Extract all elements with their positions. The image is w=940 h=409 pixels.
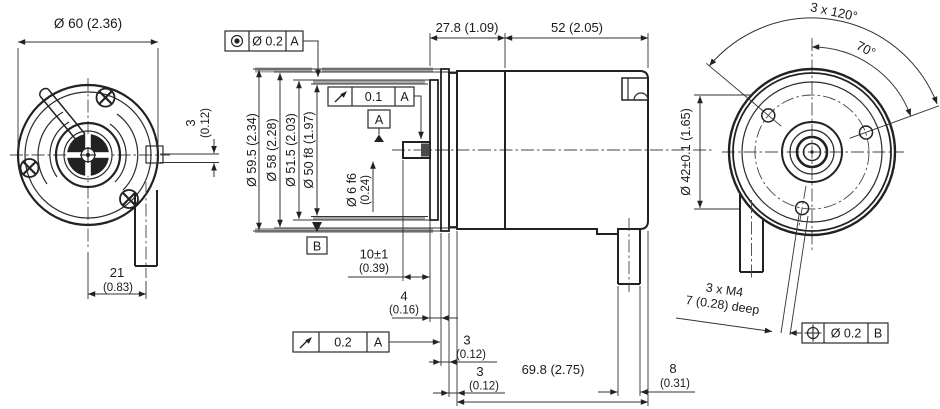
encoder-body [457, 71, 648, 234]
body-length-label: 69.8 (2.75) [522, 362, 585, 377]
bolt-circle-label: Ø 42±0.1 (1.65) [679, 108, 693, 195]
front-offset-label-inch: (0.12) [200, 108, 212, 138]
dim-plate1: 3 (0.12) [429, 333, 497, 363]
dim-step: 4 (0.16) [389, 289, 458, 319]
dim-shaft-diameter: Ø 6 f6 (0.24) [345, 162, 373, 213]
plate2-label-inch: (0.12) [469, 381, 499, 393]
rear-view: 3 x 120° 70° Ø 42±0.1 (1.65) 3 x M4 7 (0… [676, 0, 939, 343]
step-label-inch: (0.16) [389, 305, 419, 317]
dia-flange-label: Ø 59.5 (2.34) [245, 113, 259, 187]
shaft-dia-label: Ø 6 f6 [345, 173, 359, 207]
dim-front-offset: 3 (0.12) [160, 108, 219, 177]
length-rear-label: 52 (2.05) [551, 20, 603, 35]
dim-lengths-top: 27.8 (1.09) 52 (2.05) [430, 20, 648, 68]
cable-offset-label-inch: (0.83) [103, 282, 133, 294]
position-datum: B [874, 327, 882, 341]
runout-icon [335, 91, 347, 102]
front-screw-2 [21, 159, 39, 177]
step-label: 4 [400, 289, 407, 304]
plate2-label: 3 [476, 364, 483, 379]
position-tolerance: Ø 0.2 [831, 327, 862, 341]
rear-screw-holes [706, 63, 939, 229]
encoder-dimensional-drawing: Ø 60 (2.36) 3 (0.12) 21 (0.83) [0, 0, 940, 409]
dim-cable-diameter: 8 (0.31) [598, 361, 695, 392]
dia-inner-label: Ø 51.5 (2.03) [284, 113, 298, 187]
fcf-runout-face: 0.2 A [293, 332, 440, 352]
shaft-length-label-inch: (0.39) [359, 263, 389, 275]
shaft-dia-label-inch: (0.24) [360, 175, 372, 205]
plate1-label-inch: (0.12) [456, 349, 486, 361]
datum-b: B [307, 222, 327, 254]
front-offset-label: 3 [183, 119, 198, 126]
dim-front-cable-offset: 21 (0.83) [88, 252, 146, 299]
length-front-label: 27.8 (1.09) [436, 20, 499, 35]
dia-centering-label: Ø 50 f8 (1.97) [302, 111, 316, 188]
runout-face-datum: A [374, 336, 383, 350]
dim-bolt-circle: Ø 42±0.1 (1.65) [679, 95, 752, 209]
fcf-position: Ø 0.2 B [790, 323, 889, 343]
datum-a: A [368, 110, 390, 142]
dim-shaft-length: 10±1 (0.39) [348, 247, 430, 278]
datum-b-label: B [313, 240, 321, 254]
torque-stop-tab [146, 146, 163, 163]
concentricity-datum: A [290, 35, 299, 49]
runout-shaft-datum: A [400, 90, 409, 104]
front-screw-1 [97, 89, 115, 107]
thread-callout: 3 x M4 7 (0.28) deep [676, 215, 808, 335]
plate1-label: 3 [463, 333, 470, 348]
runout-shaft-tolerance: 0.1 [365, 90, 382, 104]
position-icon [805, 325, 822, 342]
shaft-length-label: 10±1 [360, 247, 389, 262]
cable-offset-label: 21 [110, 265, 124, 280]
datum-a-label: A [375, 113, 384, 127]
cable-dia-label: 8 [669, 361, 676, 376]
side-view: Ø 59.5 (2.34) Ø 58 (2.28) Ø 51.5 (2.03) … [225, 20, 714, 406]
front-view: Ø 60 (2.36) 3 (0.12) 21 (0.83) [10, 16, 219, 299]
diameter-dimensions: Ø 59.5 (2.34) Ø 58 (2.28) Ø 51.5 (2.03) … [245, 70, 317, 230]
concentricity-tolerance: Ø 0.2 [252, 35, 283, 49]
dim-plate2: 3 (0.12) [433, 364, 505, 393]
runout-face-tolerance: 0.2 [334, 336, 351, 350]
rear-cable [740, 194, 763, 280]
front-diameter-label: Ø 60 (2.36) [54, 16, 122, 31]
dia-body-label: Ø 58 (2.28) [265, 118, 279, 181]
dim-angles: 3 x 120° 70° [709, 0, 937, 116]
hole-pattern-angle-label: 3 x 120° [809, 0, 859, 24]
concentricity-icon [232, 36, 243, 47]
technical-drawing-page: Ø 60 (2.36) 3 (0.12) 21 (0.83) [0, 0, 940, 409]
connector-recess [622, 78, 648, 100]
runout-icon [300, 337, 312, 348]
cable-dia-label-inch: (0.31) [660, 378, 690, 390]
